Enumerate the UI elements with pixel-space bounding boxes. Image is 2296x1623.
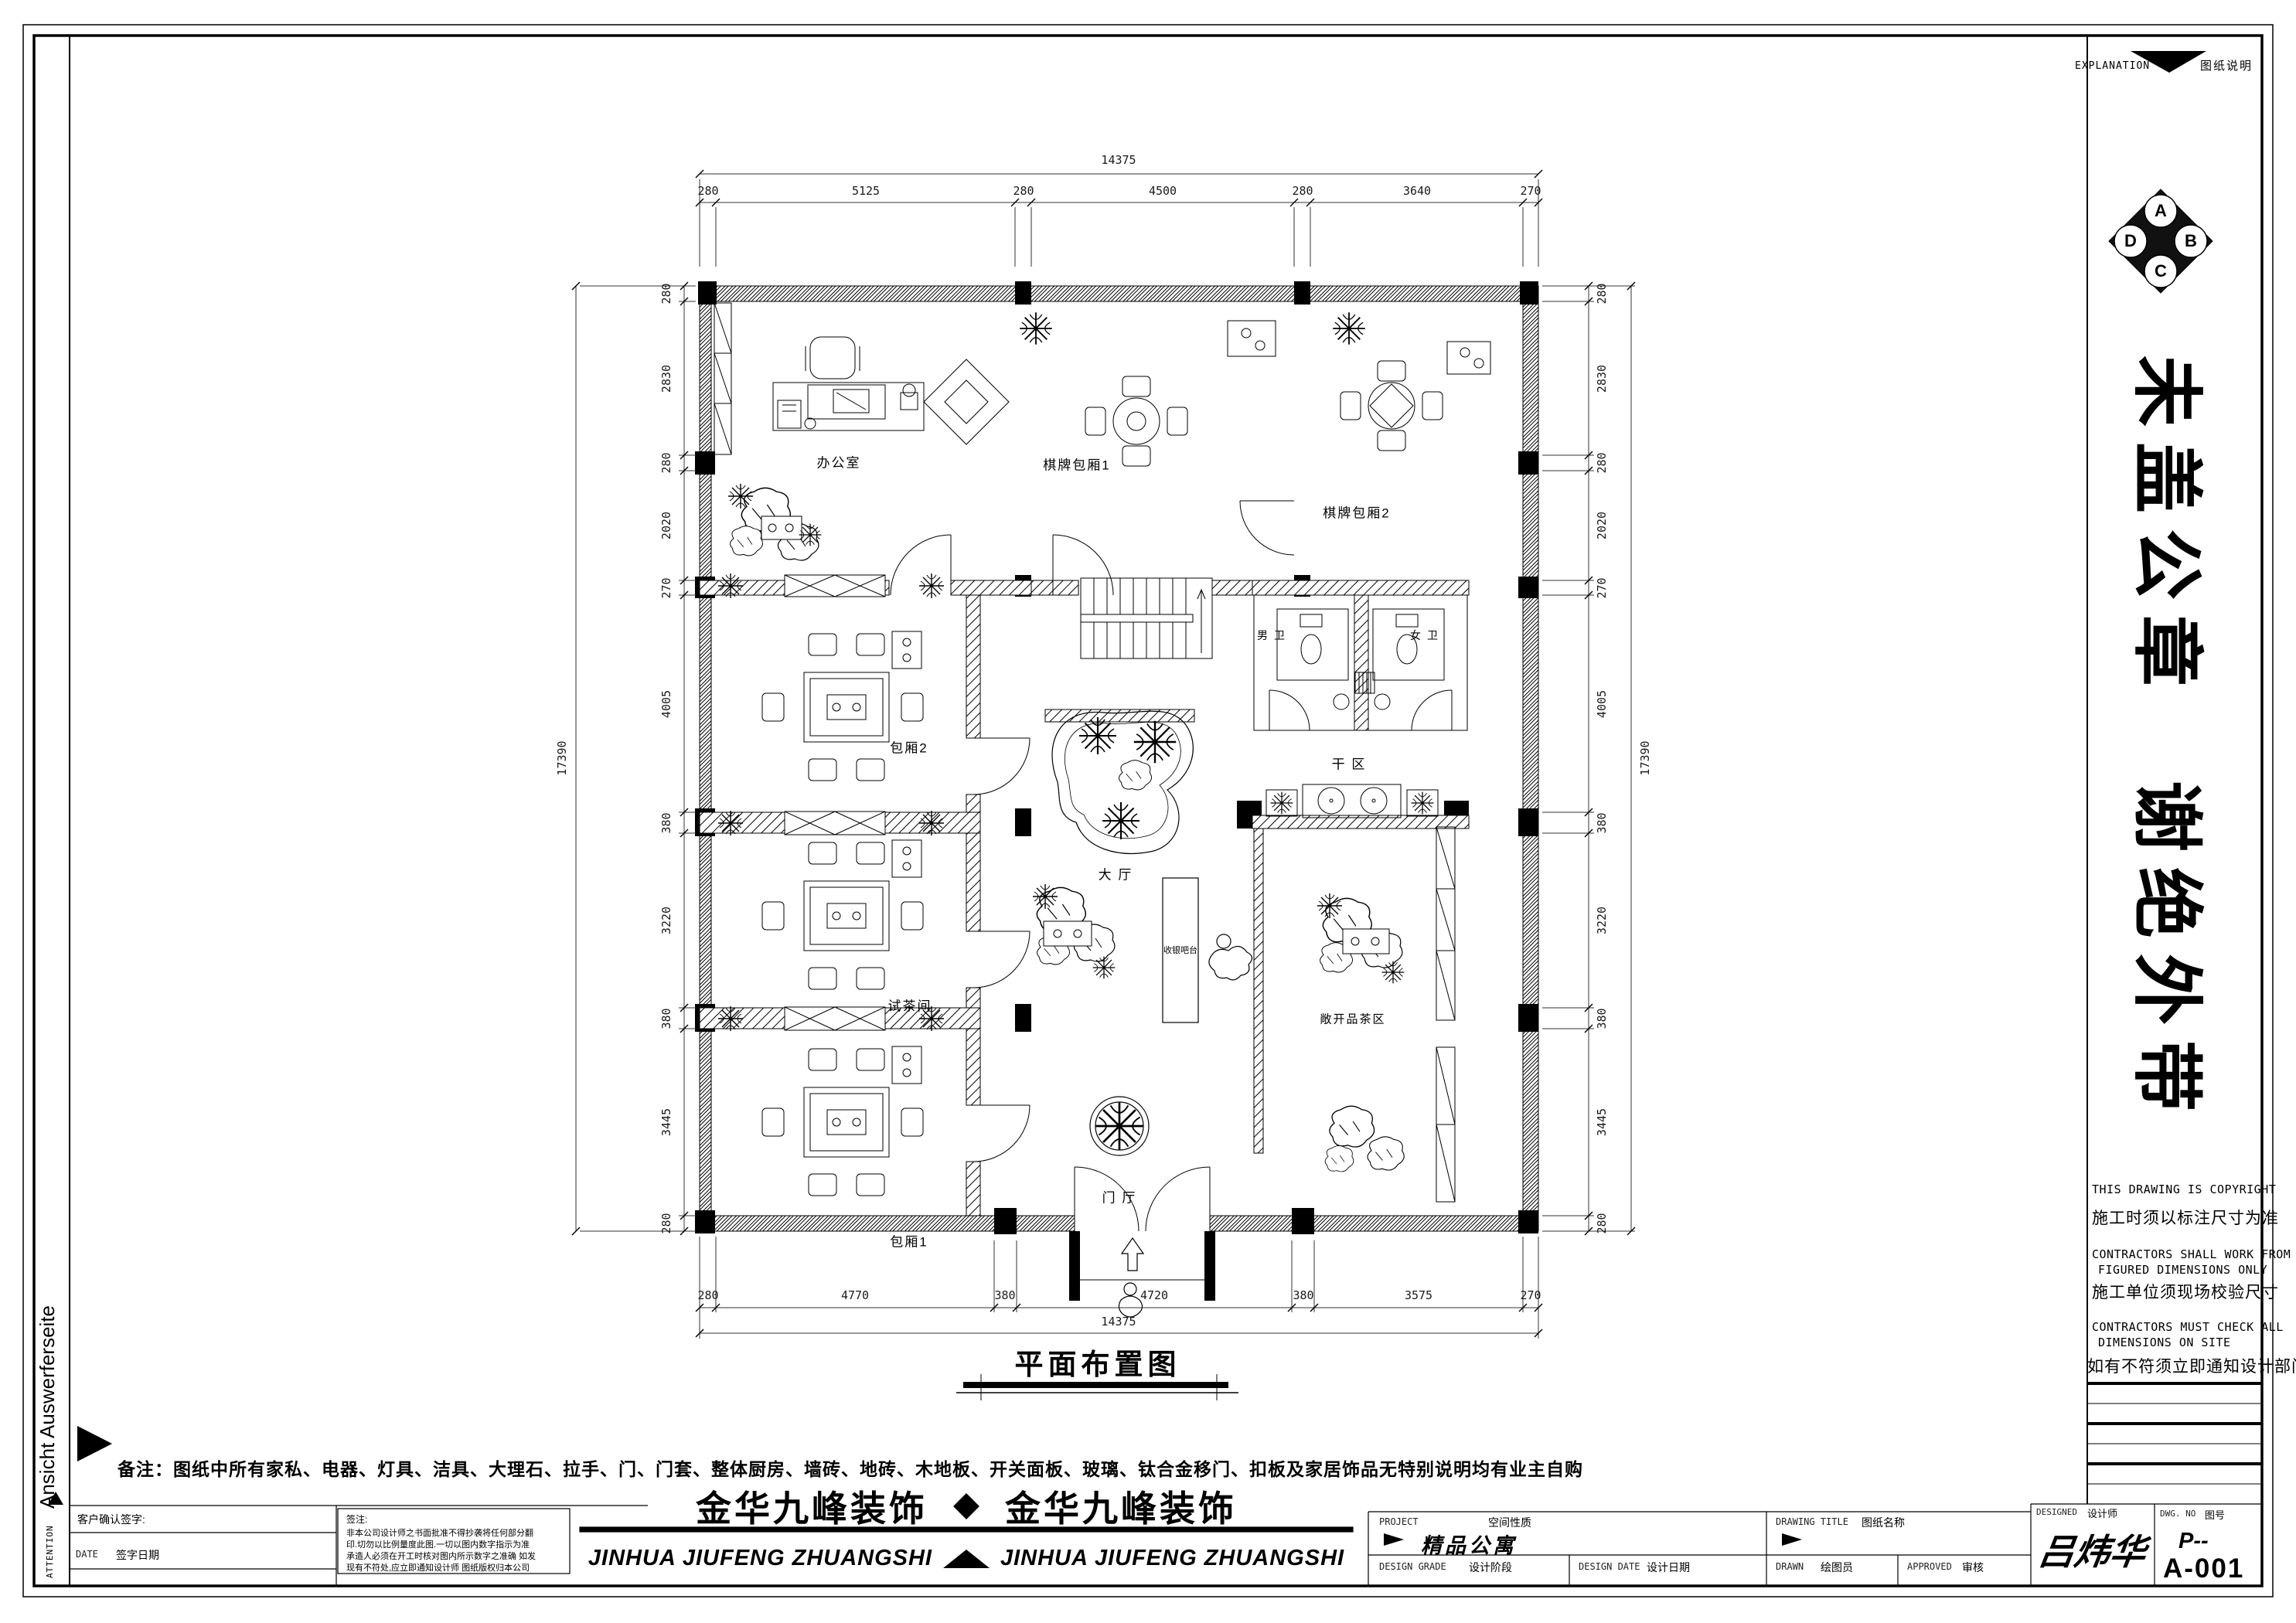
stamp-char: 盖 [2118, 439, 2205, 516]
notice-contractors-en2: FIGURED DIMENSIONS ONLY [2098, 1263, 2267, 1277]
diamond-icon [953, 1493, 979, 1519]
design-grade-label-en: DESIGN GRADE [1379, 1561, 1446, 1572]
project-label-zh: 空间性质 [1488, 1515, 1531, 1530]
mahjong-room1-furniture [1020, 312, 1276, 466]
design-date-label-zh: 设计日期 [1647, 1560, 1690, 1575]
drawing-sheet: Ansicht Auswerferseite ATTENTION EXPLANA… [0, 0, 2296, 1623]
dim: 2020 [1595, 512, 1609, 539]
dim: 280 [1013, 184, 1034, 198]
dim: 270 [1595, 577, 1609, 598]
stairs [1081, 578, 1212, 658]
company-banner-en: JINHUA JIUFENG ZHUANGSHI JINHUA JIUFENG … [564, 1546, 1368, 1571]
designed-label-zh: 设计师 [2087, 1506, 2117, 1520]
dim: 3640 [1403, 184, 1431, 198]
room-label-mahjong2: 棋牌包厢2 [1323, 502, 1390, 522]
drawn-label-zh: 绘图员 [1821, 1560, 1853, 1575]
dim: 380 [994, 1288, 1015, 1302]
compass-letter-d: D [2124, 231, 2137, 251]
notice-check-en2: DIMENSIONS ON SITE [2098, 1335, 2231, 1349]
dim: 270 [1520, 184, 1541, 198]
date-label-zh: 签字日期 [116, 1547, 159, 1563]
dim: 280 [659, 452, 673, 473]
dim: 4005 [659, 690, 673, 718]
band-plants [718, 573, 944, 1031]
stamp-char: 公 [2118, 526, 2205, 603]
remark-note-line: 备注：图纸中所有家私、电器、灯具、洁具、大理石、拉手、门、门套、整体厨房、墙砖、… [118, 1455, 1583, 1481]
dim: 280 [1595, 452, 1609, 473]
dim: 380 [1293, 1288, 1313, 1302]
dim: 280 [659, 1213, 673, 1233]
client-sign-label: 客户确认签字: [77, 1512, 145, 1527]
plan-title: 平面布置图 [1015, 1341, 1181, 1383]
compass-letter-b: B [2185, 231, 2197, 251]
dim: 380 [1595, 1008, 1609, 1029]
dim: 280 [1292, 184, 1313, 198]
stamp-char: 章 [2118, 612, 2205, 689]
remark-box-line: 承造人必须在开工时核对图内所示数字之准确 如发 [346, 1550, 536, 1562]
attention-label: ATTENTION [45, 1525, 55, 1578]
notice-check-zh: 如有不符须立即通知设计部门 [2087, 1354, 2296, 1377]
remark-box-line: 非本公司设计师之书面批准不得抄袭将任何部分翻 [346, 1526, 533, 1539]
dim-left-total: 17390 [555, 740, 569, 775]
company-name-en: JINHUA JIUFENG ZHUANGSHI [1000, 1546, 1344, 1571]
entrance-arrow [1119, 1238, 1143, 1317]
foyer-planter [1090, 1097, 1149, 1155]
project-value: 精品公寓 [1421, 1529, 1517, 1559]
explanation-label-zh: 图纸说明 [2200, 57, 2253, 73]
design-grade-label-zh: 设计阶段 [1469, 1560, 1512, 1575]
dim: 380 [1595, 812, 1609, 833]
dim: 4720 [1140, 1288, 1168, 1302]
room-label-male-wc: 男 卫 [1257, 628, 1286, 643]
approved-label-zh: 审核 [1962, 1560, 1984, 1575]
room-label-open-tea: 敞开品茶区 [1320, 1011, 1385, 1027]
room-label-hall: 大 厅 [1099, 864, 1133, 883]
room-label-dry-area: 干 区 [1332, 754, 1367, 773]
stamp-char: 带 [2118, 1037, 2205, 1114]
date-label-en: DATE [76, 1549, 98, 1560]
company-name-zh: 金华九峰装饰 [696, 1481, 928, 1532]
hall-rock-cluster [1033, 884, 1115, 978]
dim: 280 [697, 1288, 718, 1302]
dim: 3445 [659, 1108, 673, 1136]
drawing-title-label-zh: 图纸名称 [1862, 1515, 1905, 1530]
dwg-no-value-prefix: P-- [2178, 1529, 2209, 1554]
sheet-side-label: Ansicht Auswerferseite [36, 1305, 60, 1509]
designed-label-en: DESIGNED [2036, 1507, 2077, 1517]
company-banner-zh: 金华九峰装饰 金华九峰装饰 [580, 1481, 1353, 1532]
dim-bottom-total: 14375 [1101, 1315, 1136, 1329]
box2-table-group [762, 631, 923, 781]
triangle-icon [943, 1550, 990, 1568]
dwg-no-label-en: DWG. NO [2160, 1509, 2196, 1519]
room-label-mahjong1: 棋牌包厢1 [1043, 454, 1110, 474]
notice-copyright-en: THIS DRAWING IS COPYRIGHT [2092, 1182, 2276, 1196]
structural-columns [695, 281, 1538, 1301]
box1-table-group [762, 1046, 923, 1196]
mahjong-room2-furniture [1333, 312, 1490, 451]
dim: 380 [659, 1008, 673, 1029]
room-label-box2: 包厢2 [890, 737, 928, 757]
room-label-cashier: 收银吧台 [1163, 944, 1197, 956]
dim: 380 [659, 812, 673, 833]
dry-area-counter [1266, 784, 1438, 818]
dim: 280 [1595, 283, 1609, 304]
dim: 5125 [852, 184, 880, 198]
room-label-tea-room: 试茶间 [888, 995, 932, 1015]
revision-rows [2087, 1383, 2262, 1484]
hall-pond [1052, 711, 1193, 853]
drawing-title-label-en: DRAWING TITLE [1776, 1516, 1848, 1527]
notice-check-en1: CONTRACTORS MUST CHECK ALL [2092, 1320, 2284, 1334]
dim: 280 [697, 184, 718, 198]
sideboards [785, 575, 885, 1030]
dim: 4005 [1595, 690, 1609, 718]
remark-box-line: 现有不符处,应立即通知设计师 图纸版权归本公司 [346, 1561, 530, 1574]
dim: 270 [1520, 1288, 1541, 1302]
dim: 3220 [659, 907, 673, 934]
pointer-arrow-icon [1782, 1533, 1802, 1546]
room-label-box1: 包厢1 [890, 1231, 928, 1250]
stamp-char: 未 [2118, 352, 2205, 430]
pointer-arrow-icon [1384, 1533, 1404, 1546]
explanation-label-en: EXPLANATION [2075, 60, 2150, 72]
stamp-char: 绝 [2118, 864, 2205, 941]
office-furniture [714, 303, 1009, 560]
dim: 270 [659, 577, 673, 598]
dimension-lines [576, 174, 1635, 1339]
remark-box-title: 签注: [346, 1512, 367, 1526]
company-name-en: JINHUA JIUFENG ZHUANGSHI [588, 1546, 932, 1571]
dim: 2830 [659, 365, 673, 393]
room-label-office: 办公室 [817, 452, 861, 471]
drawn-label-en: DRAWN [1776, 1561, 1804, 1572]
dim: 3445 [1595, 1108, 1609, 1136]
dim: 4770 [841, 1288, 869, 1302]
stamp-char: 外 [2118, 951, 2205, 1028]
dim-right-total: 17390 [1638, 740, 1652, 775]
notice-copyright-zh: 施工时须以标注尺寸为准 [2092, 1206, 2279, 1229]
dwg-no-label-zh: 图号 [2205, 1507, 2225, 1522]
remark-box-line: 印.切勿以比例量度此图.一切以图内数字指示为准 [346, 1538, 530, 1550]
tea-room-table-group [762, 840, 923, 989]
room-label-foyer: 门 厅 [1102, 1187, 1137, 1206]
notice-contractors-en1: CONTRACTORS SHALL WORK FROM [2092, 1247, 2291, 1261]
dim: 3575 [1405, 1288, 1432, 1302]
stamp-char: 谢 [2118, 777, 2205, 855]
dim: 4500 [1149, 184, 1177, 198]
room-label-female-wc: 女 卫 [1410, 628, 1439, 643]
approved-label-en: APPROVED [1907, 1561, 1952, 1572]
designer-signature: 吕炜华 [2035, 1524, 2149, 1575]
compass-letter-a: A [2155, 201, 2167, 221]
design-date-label-en: DESIGN DATE [1579, 1561, 1640, 1572]
dim: 280 [1595, 1213, 1609, 1233]
dim: 3220 [1595, 907, 1609, 934]
dim: 2020 [659, 512, 673, 539]
dim: 2830 [1595, 365, 1609, 393]
dim-top-total: 14375 [1101, 153, 1136, 167]
project-label-en: PROJECT [1379, 1516, 1419, 1527]
dim: 280 [659, 283, 673, 304]
company-name-zh: 金华九峰装饰 [1005, 1481, 1237, 1532]
compass-letter-c: C [2155, 261, 2167, 281]
dwg-no-value: A-001 [2163, 1553, 2244, 1584]
notice-contractors-zh: 施工单位须现场校验尺寸 [2092, 1280, 2279, 1303]
